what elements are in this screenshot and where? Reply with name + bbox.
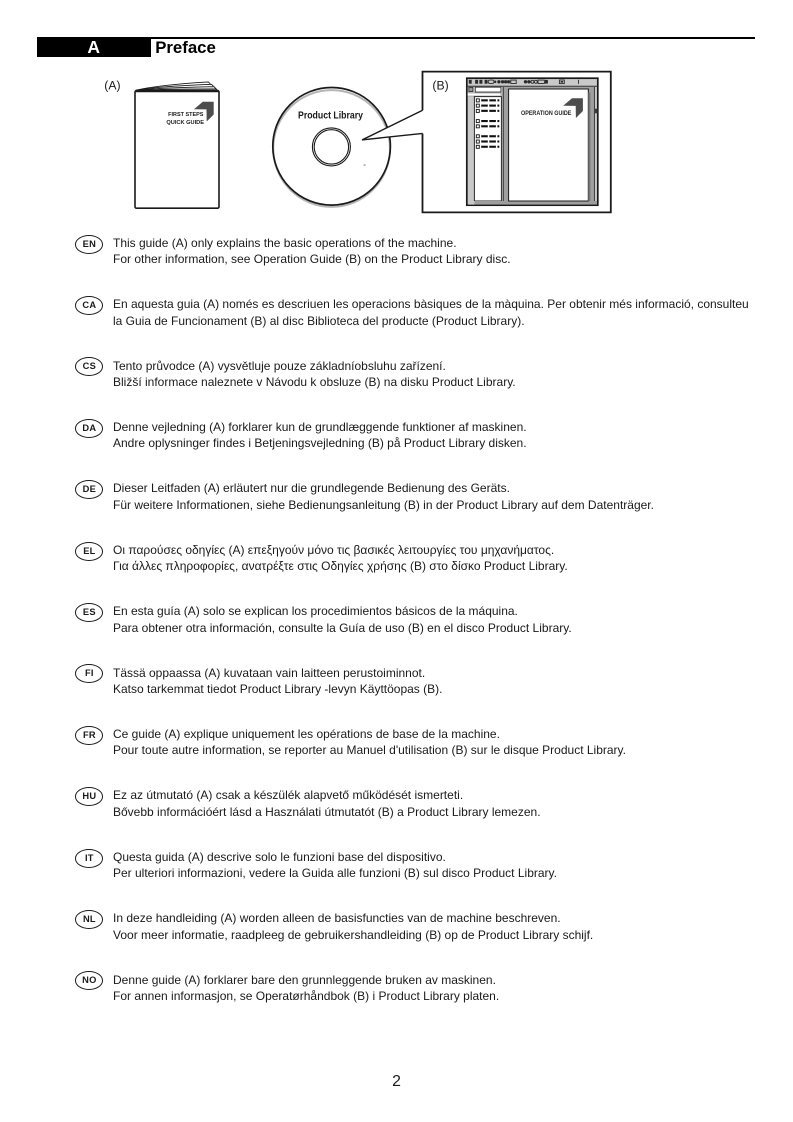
- svg-text:FIRST STEPS: FIRST STEPS: [168, 112, 204, 118]
- svg-text:Product Library: Product Library: [298, 110, 363, 121]
- svg-text:(A): (A): [104, 78, 120, 92]
- svg-text:(B): (B): [432, 78, 448, 92]
- svg-text:OPERATION GUIDE: OPERATION GUIDE: [521, 110, 572, 117]
- svg-text:QUICK GUIDE: QUICK GUIDE: [166, 120, 204, 126]
